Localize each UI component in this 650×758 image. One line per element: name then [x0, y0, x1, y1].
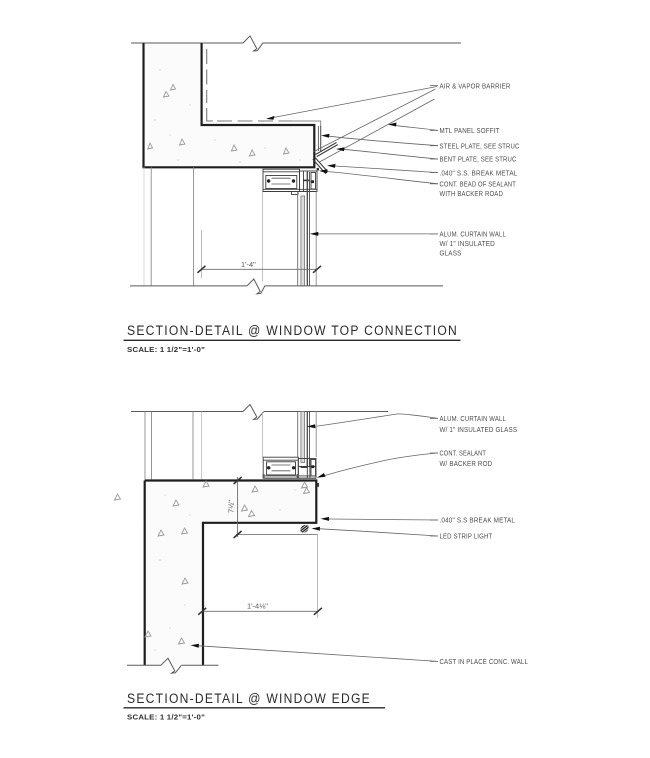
svg-text:1'-4": 1'-4" — [241, 260, 256, 269]
svg-text:SECTION-DETAIL @ WINDOW EDGE: SECTION-DETAIL @ WINDOW EDGE — [127, 691, 371, 706]
svg-text:AIR & VAPOR BARRIER: AIR & VAPOR BARRIER — [440, 81, 511, 90]
svg-text:BENT PLATE, SEE STRUC: BENT PLATE, SEE STRUC — [440, 155, 517, 164]
svg-text:MTL PANEL SOFFIT: MTL PANEL SOFFIT — [440, 126, 500, 135]
svg-text:W/ 1" INSULATED GLASS: W/ 1" INSULATED GLASS — [440, 425, 518, 434]
svg-text:CAST IN PLACE CONC. WALL: CAST IN PLACE CONC. WALL — [440, 657, 529, 666]
svg-text:SECTION-DETAIL @ WINDOW TOP CO: SECTION-DETAIL @ WINDOW TOP CONNECTION — [127, 323, 458, 338]
svg-text:ALUM. CURTAIN WALL: ALUM. CURTAIN WALL — [440, 230, 507, 239]
svg-text:.040" S.S. BREAK METAL: .040" S.S. BREAK METAL — [440, 168, 518, 177]
svg-text:CONT. BEAD OF SEALANT: CONT. BEAD OF SEALANT — [440, 180, 517, 189]
svg-text:ALUM. CURTAIN WALL: ALUM. CURTAIN WALL — [440, 414, 507, 423]
svg-text:GLASS: GLASS — [440, 249, 462, 258]
svg-text:CONT. SEALANT: CONT. SEALANT — [440, 449, 487, 458]
svg-text:7½": 7½" — [227, 500, 236, 513]
svg-text:STEEL PLATE, SEE STRUC: STEEL PLATE, SEE STRUC — [440, 141, 520, 150]
svg-text:SCALE: 1 1/2"=1'-0": SCALE: 1 1/2"=1'-0" — [127, 713, 205, 722]
svg-text:W/ BACKER ROD: W/ BACKER ROD — [440, 459, 493, 468]
svg-text:WITH BACKER ROAD: WITH BACKER ROAD — [440, 189, 504, 198]
svg-text:.040" S.S BREAK METAL: .040" S.S BREAK METAL — [440, 516, 516, 525]
svg-text:W/ 1" INSULATED: W/ 1" INSULATED — [440, 239, 496, 248]
svg-text:1'-4⅛": 1'-4⅛" — [247, 602, 268, 611]
svg-text:SCALE: 1 1/2"=1'-0": SCALE: 1 1/2"=1'-0" — [127, 345, 205, 354]
svg-text:LED STRIP LIGHT: LED STRIP LIGHT — [440, 532, 493, 541]
